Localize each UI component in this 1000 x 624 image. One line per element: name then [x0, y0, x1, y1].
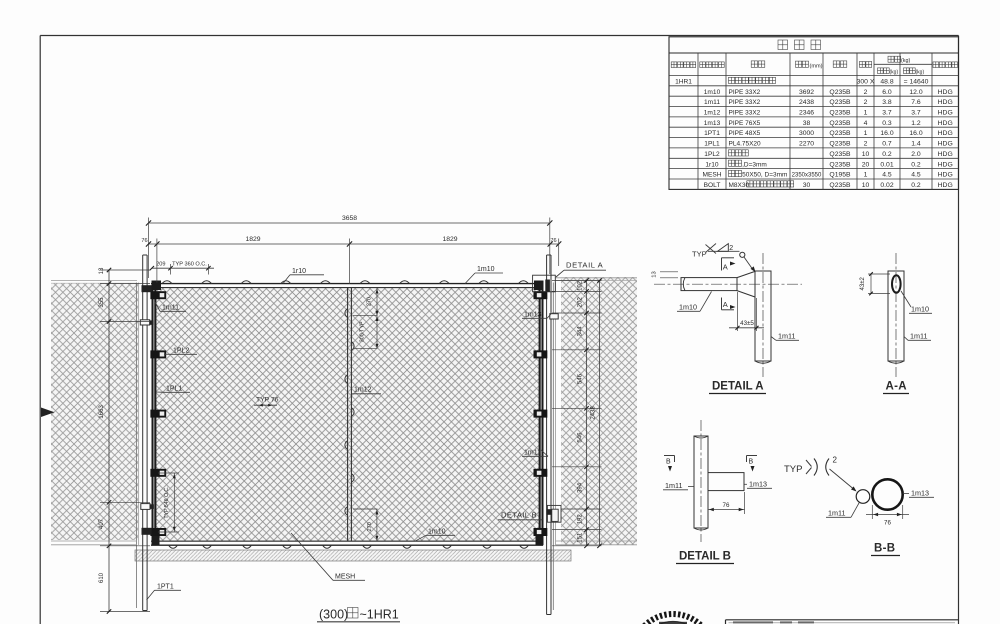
- svg-text:B: B: [666, 459, 671, 466]
- svg-text:10: 10: [862, 182, 870, 189]
- svg-text:2270: 2270: [799, 141, 814, 148]
- svg-text:Q235B: Q235B: [829, 151, 851, 158]
- svg-text:30: 30: [803, 182, 811, 189]
- svg-text:TYP 360 O.C.: TYP 360 O.C.: [172, 261, 207, 267]
- svg-text:3.7: 3.7: [911, 110, 921, 117]
- svg-text:192: 192: [578, 514, 584, 525]
- svg-text:(kg): (kg): [901, 58, 910, 64]
- svg-text:43±5: 43±5: [740, 320, 754, 327]
- svg-text:4.5: 4.5: [882, 172, 892, 179]
- svg-text:1m10: 1m10: [704, 89, 721, 96]
- svg-text:A-A: A-A: [886, 381, 907, 393]
- svg-text:0.7: 0.7: [882, 141, 892, 148]
- svg-text:2346: 2346: [799, 110, 814, 117]
- svg-text:BOLT: BOLT: [704, 182, 721, 189]
- svg-text:1663: 1663: [99, 405, 105, 419]
- svg-text:50X50, D=3mm: 50X50, D=3mm: [742, 172, 787, 179]
- svg-text:(kg): (kg): [916, 70, 925, 76]
- svg-text:3000: 3000: [799, 130, 814, 137]
- svg-text:546: 546: [578, 432, 584, 443]
- svg-text:1829: 1829: [442, 236, 457, 243]
- svg-text:A: A: [723, 300, 728, 309]
- svg-text:2.0: 2.0: [911, 151, 921, 158]
- svg-text:HDG: HDG: [938, 182, 953, 189]
- svg-text:(kg): (kg): [890, 70, 899, 76]
- svg-text:HDG: HDG: [938, 151, 953, 158]
- svg-text:PIPE 33X2: PIPE 33X2: [729, 89, 761, 96]
- svg-text:1m13: 1m13: [911, 489, 929, 498]
- svg-text:3.8: 3.8: [882, 99, 892, 106]
- svg-text:3692: 3692: [799, 89, 814, 96]
- svg-text:DETAIL A: DETAIL A: [712, 381, 764, 393]
- svg-text:~1HR1: ~1HR1: [360, 608, 399, 622]
- svg-text:TYP: TYP: [784, 464, 802, 475]
- svg-text:0.01: 0.01: [880, 161, 893, 168]
- svg-text:38: 38: [803, 120, 811, 127]
- svg-text:MESH: MESH: [335, 574, 355, 581]
- svg-text:209: 209: [156, 261, 165, 267]
- svg-text:2438: 2438: [799, 99, 814, 106]
- svg-text:1PL1: 1PL1: [166, 386, 182, 393]
- svg-text:76: 76: [550, 238, 556, 244]
- svg-text:6.0: 6.0: [882, 89, 892, 96]
- svg-text:(mm): (mm): [810, 63, 823, 69]
- svg-text:102: 102: [578, 280, 584, 291]
- svg-text:4: 4: [864, 120, 868, 127]
- svg-text:3658: 3658: [342, 215, 357, 222]
- svg-text:76: 76: [723, 502, 730, 509]
- svg-text:1m11: 1m11: [704, 99, 720, 106]
- svg-text:151: 151: [578, 532, 584, 543]
- svg-text:2: 2: [864, 141, 868, 148]
- svg-text:M8X30: M8X30: [729, 182, 750, 189]
- svg-text:7.6: 7.6: [911, 99, 921, 106]
- svg-text:TYP 546 O.C.: TYP 546 O.C.: [164, 486, 170, 518]
- svg-text:DETAIL B: DETAIL B: [679, 551, 731, 563]
- svg-text:0.2: 0.2: [882, 151, 892, 158]
- svg-text:1HR1: 1HR1: [675, 79, 692, 86]
- svg-text:PL4.75X20: PL4.75X20: [729, 141, 762, 148]
- svg-text:300 TYP: 300 TYP: [360, 321, 366, 342]
- svg-text:HDG: HDG: [938, 130, 953, 137]
- svg-text:13: 13: [652, 271, 658, 277]
- svg-text:1m13: 1m13: [749, 480, 767, 489]
- svg-text:394: 394: [578, 482, 584, 493]
- svg-text:HDG: HDG: [938, 120, 953, 127]
- svg-text:1r10: 1r10: [292, 268, 306, 275]
- svg-text:1m10: 1m10: [428, 529, 446, 536]
- svg-text:HDG: HDG: [938, 172, 953, 179]
- svg-text:13: 13: [99, 267, 105, 274]
- svg-text:HDG: HDG: [938, 110, 953, 117]
- svg-text:PIPE 76X5: PIPE 76X5: [729, 120, 761, 127]
- svg-text:= 14640: = 14640: [904, 79, 929, 86]
- svg-text:546: 546: [578, 373, 584, 384]
- svg-text:1PL2: 1PL2: [173, 348, 189, 355]
- svg-text:1m11: 1m11: [162, 305, 179, 312]
- svg-text:Q235B: Q235B: [829, 89, 851, 96]
- svg-text:2: 2: [729, 245, 733, 252]
- svg-text:Q235B: Q235B: [829, 141, 851, 148]
- svg-text:1: 1: [864, 110, 868, 117]
- svg-text:300 X: 300 X: [857, 79, 875, 86]
- svg-text:1PT1: 1PT1: [157, 584, 174, 591]
- svg-text:1m12: 1m12: [354, 387, 372, 394]
- svg-text:2350x3550: 2350x3550: [792, 173, 822, 179]
- svg-text:1m13: 1m13: [524, 312, 542, 319]
- svg-text:1m11: 1m11: [524, 450, 541, 457]
- svg-text:,D=3mm: ,D=3mm: [742, 161, 767, 168]
- svg-text:1r10: 1r10: [705, 161, 719, 168]
- svg-text:76: 76: [141, 238, 147, 244]
- svg-text:270: 270: [367, 522, 373, 531]
- svg-text:270: 270: [367, 297, 373, 306]
- svg-text:HDG: HDG: [938, 141, 953, 148]
- svg-text:10: 10: [862, 151, 870, 158]
- svg-text:PIPE 48X5: PIPE 48X5: [729, 130, 761, 137]
- svg-text:Q235B: Q235B: [829, 161, 851, 168]
- svg-text:407: 407: [99, 518, 105, 529]
- svg-text:16.0: 16.0: [909, 130, 922, 137]
- svg-text:1PL2: 1PL2: [704, 151, 720, 158]
- svg-text:1.2: 1.2: [911, 120, 921, 127]
- svg-text:1m11: 1m11: [778, 332, 795, 341]
- svg-text:Q235B: Q235B: [829, 130, 851, 137]
- svg-text:DETAIL B: DETAIL B: [501, 511, 537, 520]
- svg-text:A: A: [723, 263, 728, 272]
- svg-text:610: 610: [99, 572, 105, 583]
- svg-text:20: 20: [862, 161, 870, 168]
- svg-text:0.2: 0.2: [911, 161, 921, 168]
- svg-text:76: 76: [884, 520, 891, 527]
- svg-text:Q235B: Q235B: [829, 182, 851, 189]
- svg-text:HDG: HDG: [938, 89, 953, 96]
- svg-text:DETAIL A: DETAIL A: [566, 261, 604, 270]
- svg-text:PIPE 33X2: PIPE 33X2: [729, 99, 761, 106]
- svg-text:Q235B: Q235B: [829, 120, 851, 127]
- svg-text:HDG: HDG: [938, 161, 953, 168]
- svg-text:B: B: [749, 459, 754, 466]
- svg-text:4.5: 4.5: [911, 172, 921, 179]
- svg-text:1m13: 1m13: [704, 120, 721, 127]
- svg-text:0.02: 0.02: [880, 182, 893, 189]
- svg-text:1m12: 1m12: [704, 110, 721, 117]
- svg-text:1829: 1829: [245, 236, 260, 243]
- svg-text:0.2: 0.2: [911, 182, 921, 189]
- svg-text:2: 2: [864, 99, 868, 106]
- svg-text:1: 1: [864, 130, 868, 137]
- svg-text:1.4: 1.4: [911, 141, 921, 148]
- svg-text:TYP: TYP: [692, 250, 707, 259]
- svg-text:1PL1: 1PL1: [704, 141, 720, 148]
- svg-text:1m10: 1m10: [911, 305, 929, 314]
- svg-text:1m11: 1m11: [828, 509, 845, 518]
- svg-text:Q195B: Q195B: [829, 172, 851, 179]
- svg-text:344: 344: [578, 326, 584, 337]
- svg-text:0.3: 0.3: [882, 120, 892, 127]
- svg-text:B-B: B-B: [874, 543, 895, 555]
- svg-text:12.0: 12.0: [909, 89, 922, 96]
- svg-text:43±2: 43±2: [860, 276, 866, 290]
- svg-text:1m10: 1m10: [477, 266, 495, 273]
- svg-text:HDG: HDG: [938, 99, 953, 106]
- svg-text:Q235B: Q235B: [829, 110, 851, 117]
- svg-text:(300): (300): [319, 608, 348, 622]
- svg-text:2: 2: [833, 456, 838, 465]
- svg-text:48.8: 48.8: [880, 79, 893, 86]
- svg-text:1m11: 1m11: [910, 332, 927, 341]
- svg-text:1m10: 1m10: [679, 303, 697, 312]
- svg-text:16.0: 16.0: [880, 130, 893, 137]
- svg-text:355: 355: [99, 297, 105, 308]
- svg-text:TYP 76: TYP 76: [256, 397, 279, 404]
- svg-text:PIPE 33X2: PIPE 33X2: [729, 110, 761, 117]
- svg-text:2: 2: [864, 89, 868, 96]
- svg-text:MESH: MESH: [702, 172, 721, 179]
- svg-text:2438: 2438: [591, 406, 597, 420]
- svg-text:3.7: 3.7: [882, 110, 892, 117]
- svg-text:1: 1: [864, 172, 868, 179]
- svg-text:202: 202: [578, 297, 584, 308]
- svg-text:1m11: 1m11: [665, 481, 682, 490]
- svg-text:Q235B: Q235B: [829, 99, 851, 106]
- svg-text:1PT1: 1PT1: [704, 130, 720, 137]
